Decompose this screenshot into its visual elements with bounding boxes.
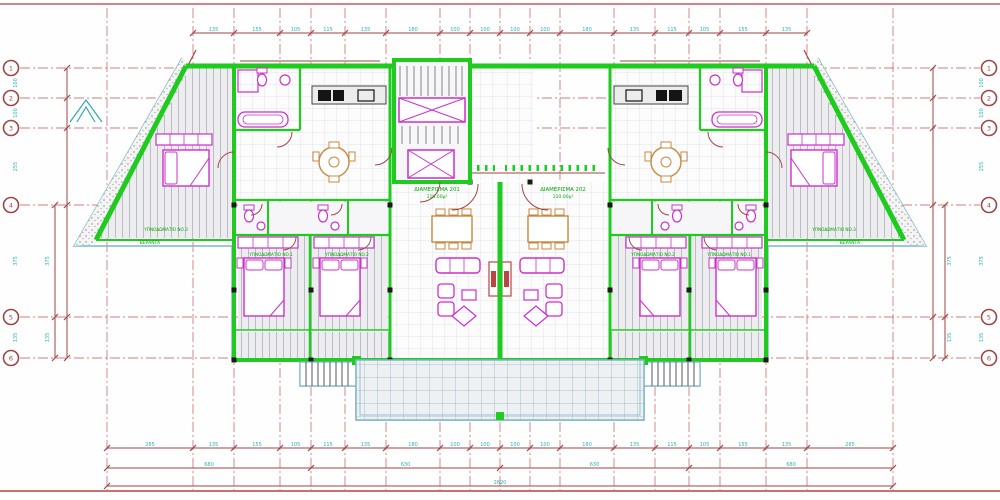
grid-bubble-label: 4	[987, 201, 991, 209]
dimension-label: 100	[13, 78, 19, 88]
bedroom1-right-label: ΥΠΝΟΔΩΜΑΤΙΟ ΝΟ.1	[706, 252, 751, 257]
grid-bubble-label: 1	[9, 64, 13, 72]
dimension-label: 135	[630, 27, 640, 33]
dimension-label: 100	[510, 27, 520, 33]
dimension-label: 100	[480, 442, 490, 448]
apartment-right-label: ΔΙΑΜΕΡΙΣΜΑ 202	[540, 187, 586, 193]
sofa	[436, 258, 480, 273]
dimension-label: 135	[361, 27, 371, 33]
dimension-label: 100	[540, 27, 550, 33]
toilet-bowl	[319, 210, 328, 222]
washbasin	[280, 75, 290, 85]
dimension-label: 680	[786, 462, 796, 468]
bedroom3-left-label: ΥΠΝΟΔΩΜΑΤΙΟ ΝΟ.3	[143, 227, 188, 232]
bathtub	[238, 112, 288, 127]
grid-bubble-label: 2	[987, 94, 991, 102]
dimension-label: 135	[209, 442, 219, 448]
coffee-table	[462, 290, 476, 300]
dimension-label: 115	[667, 27, 677, 33]
bedroom2-right-label: ΥΠΝΟΔΩΜΑΤΙΟ ΝΟ.2	[630, 252, 675, 257]
grid-bubble-label: 1	[987, 64, 991, 72]
dimension-label: 180	[582, 27, 592, 33]
dimension-label: 180	[408, 442, 418, 448]
column	[232, 358, 237, 363]
grid-bubble-label: 5	[9, 313, 13, 321]
balcony-pier	[496, 412, 504, 420]
chair	[436, 243, 445, 249]
grid-bubble-label: 4	[9, 201, 13, 209]
dimension-label: 105	[291, 442, 301, 448]
dimension-label: 630	[590, 462, 600, 468]
column	[232, 288, 237, 293]
chair	[329, 142, 339, 148]
dimension-label: 630	[401, 462, 411, 468]
washbasin	[331, 222, 339, 230]
column	[232, 203, 237, 208]
grid-bubble-label: 6	[987, 354, 991, 362]
toilet-bowl	[258, 74, 267, 86]
dimension-label: 135	[979, 333, 985, 343]
kitchen-sink-left	[318, 90, 331, 101]
toilet-bowl	[245, 210, 254, 222]
dimension-label: 115	[323, 27, 333, 33]
dimension-label: 375	[979, 256, 985, 266]
toilet-tank	[318, 205, 328, 210]
tv	[491, 271, 496, 287]
stair-core	[394, 60, 470, 202]
dimension-label: 135	[361, 442, 371, 448]
floor-plan-drawing: 1122334455661351551051151351801001001001…	[0, 0, 1000, 500]
grid-bubble-label: 5	[987, 313, 991, 321]
chair	[349, 152, 355, 161]
dimension-label: 105	[291, 27, 301, 33]
dimension-label: 100	[510, 442, 520, 448]
nightstand	[361, 258, 367, 268]
dimension-label: 285	[845, 442, 855, 448]
dimension-label: 105	[700, 442, 710, 448]
kitchen-sink-right	[333, 90, 344, 101]
exterior-stair	[300, 362, 356, 386]
chair	[462, 209, 471, 215]
floor-plan-page: 1122334455661351551051151351801001001001…	[0, 0, 1000, 500]
dimension-label: 135	[947, 333, 953, 343]
armchair	[438, 302, 454, 316]
dimension-label: 285	[145, 442, 155, 448]
column	[388, 203, 393, 208]
grid-bubble-label: 3	[9, 124, 13, 132]
dimension-label: 180	[408, 27, 418, 33]
dimension-label: 100	[13, 108, 19, 118]
dimension-label: 2620	[494, 480, 507, 486]
dimension-label: 680	[204, 462, 214, 468]
veranda-strip-floor	[236, 332, 390, 358]
dimension-label: 255	[979, 162, 985, 172]
apartment-left-label: ΔΙΑΜΕΡΙΣΜΑ 201	[414, 187, 460, 193]
dimension-label: 135	[782, 442, 792, 448]
dimension-label: 115	[323, 442, 333, 448]
veranda-right-label: ΒΕΡΑΝΤΑ	[840, 240, 860, 246]
dimension-label: 100	[979, 108, 985, 118]
dimension-label: 135	[13, 333, 19, 343]
dimension-label: 135	[630, 442, 640, 448]
washbasin	[257, 222, 265, 230]
dimension-label: 375	[13, 256, 19, 266]
dimension-label: 100	[979, 78, 985, 88]
dimension-label: 105	[700, 27, 710, 33]
chair	[436, 209, 445, 215]
dimension-label: 155	[738, 442, 748, 448]
dimension-label: 135	[782, 27, 792, 33]
dimension-label: 135	[209, 27, 219, 33]
balcony-slab	[356, 360, 644, 420]
bottom-balcony	[356, 360, 644, 420]
bedroom3-right-label: ΥΠΝΟΔΩΜΑΤΙΟ ΝΟ.3	[811, 227, 856, 232]
dimension-label: 135	[45, 333, 51, 343]
armchair	[438, 284, 454, 298]
nightstand	[285, 258, 291, 268]
bedroom2-left-label: ΥΠΝΟΔΩΜΑΤΙΟ ΝΟ.2	[324, 252, 369, 257]
dimension-label: 155	[252, 27, 262, 33]
chair	[462, 243, 471, 249]
toilet-tank	[244, 205, 254, 210]
toilet-tank	[257, 68, 267, 73]
veranda-left-label: ΒΕΡΑΝΤΑ	[140, 240, 160, 246]
column	[388, 288, 393, 293]
kitchen-table-center	[329, 157, 339, 167]
dining-table	[432, 216, 472, 242]
dimension-label: 375	[45, 256, 51, 266]
nightstand	[313, 258, 319, 268]
dimension-label: 100	[480, 27, 490, 33]
dimension-label: 155	[252, 442, 262, 448]
dimension-label: 100	[450, 442, 460, 448]
chair	[313, 152, 319, 161]
apartment-right-area: 110.00μ²	[553, 194, 574, 200]
tree-symbol	[70, 100, 102, 122]
dimension-label: 255	[13, 162, 19, 172]
column	[309, 288, 314, 293]
dimension-label: 115	[667, 442, 677, 448]
grid-bubble-label: 3	[987, 124, 991, 132]
chair	[329, 176, 339, 182]
bedroom1-left-label: ΥΠΝΟΔΩΜΑΤΙΟ ΝΟ.1	[248, 252, 293, 257]
dimension-label: 155	[738, 27, 748, 33]
dimension-label: 180	[582, 442, 592, 448]
dimension-label: 100	[450, 27, 460, 33]
apartment-left-area: 110.00μ²	[427, 194, 448, 200]
nightstand	[237, 258, 243, 268]
grid-bubble-label: 2	[9, 94, 13, 102]
chair	[449, 243, 458, 249]
dimension-label: 375	[947, 256, 953, 266]
grid-bubble-label: 6	[9, 354, 13, 362]
wing-bedroom	[156, 134, 212, 186]
dimension-label: 100	[540, 442, 550, 448]
